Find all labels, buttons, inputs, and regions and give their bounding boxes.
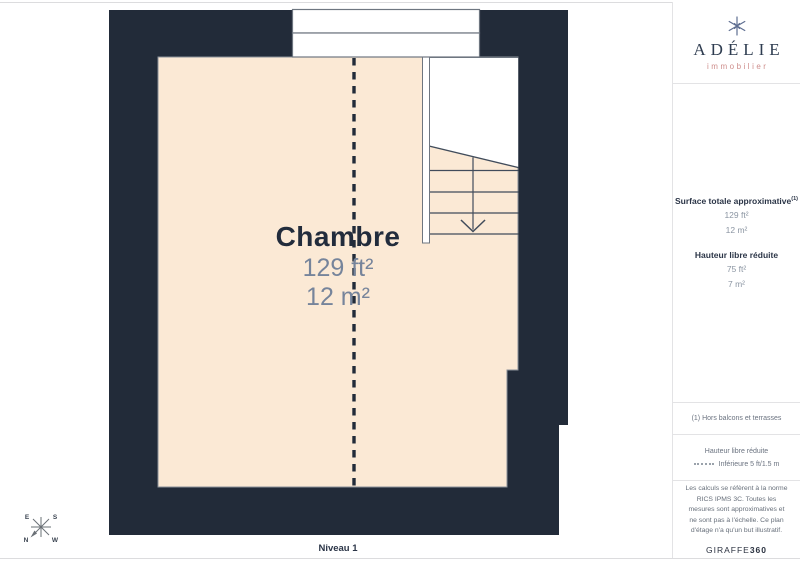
info-sidebar: ADÉLIE immobilier Surface totale approxi…: [672, 2, 800, 558]
surface-title: Surface totale approximative(1): [675, 196, 798, 206]
compass-letter: E: [25, 514, 30, 521]
legend-item-text: Inférieure 5 ft/1.5 m: [719, 461, 780, 468]
stair-partition-wall: [423, 57, 430, 243]
footnote-text: (1) Hors balcons et terrasses: [692, 415, 782, 422]
compass-icon: E S N W: [24, 514, 59, 544]
snowflake-star-icon: [726, 15, 748, 37]
legend-section: Hauteur libre réduite Inférieure 5 ft/1.…: [673, 435, 800, 481]
footnote-section: (1) Hors balcons et terrasses: [673, 403, 800, 435]
headroom-value-m: 7 m²: [728, 279, 745, 290]
surface-value-m: 12 m²: [726, 225, 748, 236]
surface-value-ft: 129 ft²: [724, 210, 748, 221]
legend-row: Inférieure 5 ft/1.5 m: [694, 461, 780, 468]
level-label: Niveau 1: [238, 543, 438, 554]
giraffe360-logo: GIRAFFE360: [706, 545, 767, 555]
legend-title: Hauteur libre réduite: [705, 448, 768, 455]
compass-letter: S: [53, 514, 58, 521]
headroom-title: Hauteur libre réduite: [695, 250, 778, 260]
brand-tagline: immobilier: [705, 62, 769, 71]
disclaimer-text: Les calculs se réfèrent à la norme RICS …: [673, 484, 800, 537]
headroom-value-ft: 75 ft²: [727, 264, 746, 275]
floorplan-drawing: E S N W: [0, 0, 672, 566]
surface-section: Surface totale approximative(1) 129 ft² …: [673, 84, 800, 403]
surface-title-footnote-mark: (1): [791, 196, 798, 202]
disclaimer-section: Les calculs se réfèrent à la norme RICS …: [673, 481, 800, 558]
niche-box-upper: [293, 10, 480, 34]
dashed-line-icon: [694, 463, 714, 465]
floorplan-page: E S N W Chambre 129 ft² 12 m² Niveau 1: [0, 0, 800, 566]
niche-box-lower: [293, 33, 480, 57]
compass-letter: W: [52, 537, 59, 544]
compass-letter: N: [24, 537, 29, 544]
logo-section: ADÉLIE immobilier: [673, 2, 800, 84]
wall-niche: [293, 10, 480, 58]
bottom-divider: [0, 558, 800, 559]
brand-name: ADÉLIE: [688, 40, 784, 60]
